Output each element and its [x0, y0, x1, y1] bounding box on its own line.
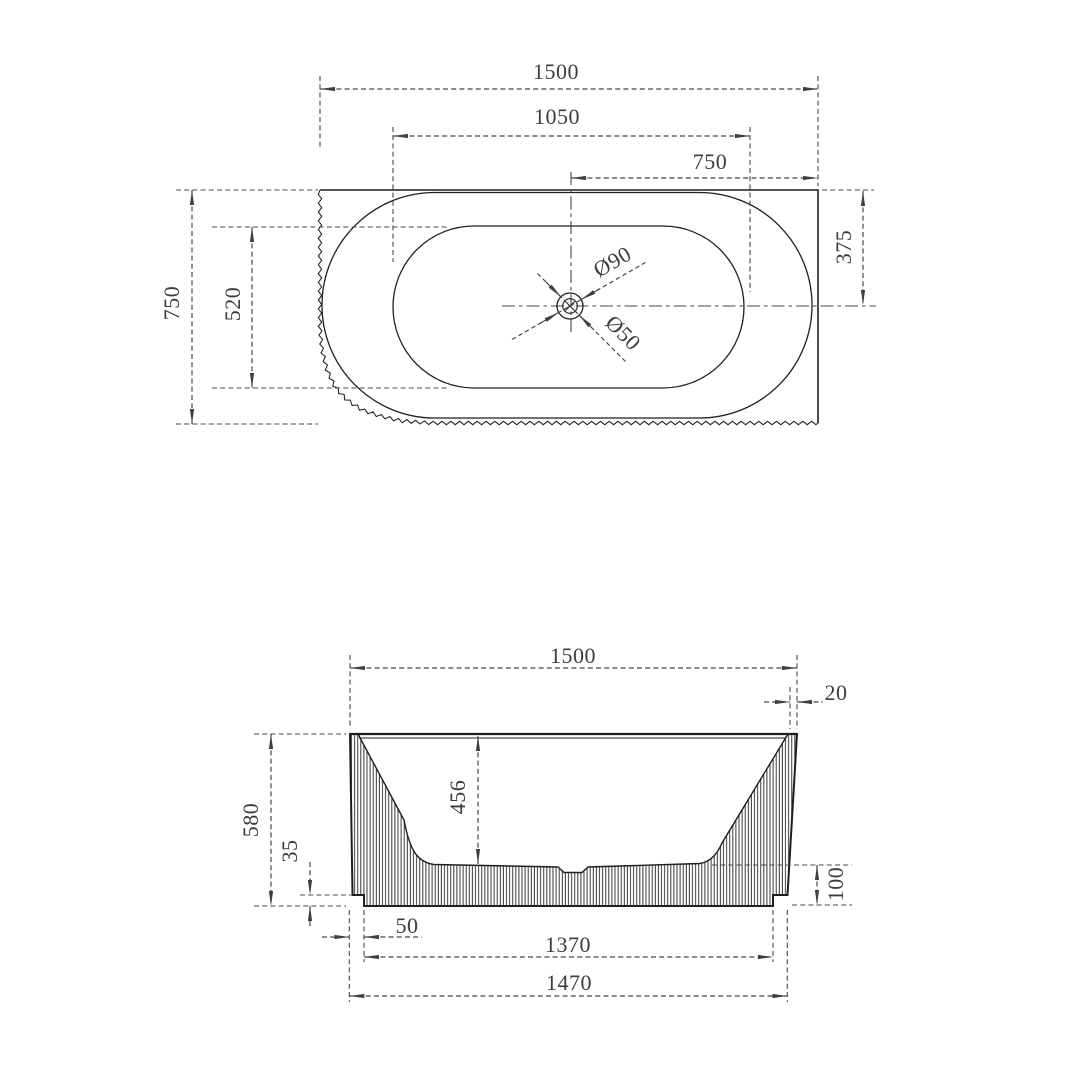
dim-label-overall-height: 580: [238, 803, 263, 838]
dim-label-drain-inner-dia: Ø50: [601, 310, 647, 356]
drain-arrow: [581, 289, 599, 300]
dim-label-elev-overall-width: 1500: [550, 643, 596, 668]
elevation-view: 1500 20 580 35 456 100 50 1370 1470: [238, 643, 852, 1002]
dim-label-rim-taper: 20: [825, 680, 848, 705]
dim-label-base-inset: 50: [396, 913, 419, 938]
dim-label-base-width: 1470: [546, 970, 592, 995]
drain-arrow: [541, 313, 559, 324]
plan-view: 1500 1050 750 750 520 375 Ø90 Ø50: [159, 59, 876, 425]
dim-label-drain-outer-dia: Ø90: [589, 241, 636, 282]
dim-label-plan-inner-length: 1050: [534, 104, 580, 129]
dim-label-plan-inner-width: 520: [220, 287, 245, 322]
dim-label-base-inner-width: 1370: [545, 932, 591, 957]
dim-label-base-height: 100: [823, 867, 848, 902]
technical-drawing: 1500 1050 750 750 520 375 Ø90 Ø50: [0, 0, 1080, 1080]
dim-label-internal-depth: 456: [445, 780, 470, 815]
drawing-canvas: 1500 1050 750 750 520 375 Ø90 Ø50: [0, 0, 1080, 1080]
dim-label-plan-drain-offset-right: 750: [693, 149, 728, 174]
drain-arrow: [579, 315, 594, 330]
dim-label-plan-overall-width: 1500: [533, 59, 579, 84]
dim-label-plan-overall-depth: 750: [159, 286, 184, 321]
drain-arrow: [546, 282, 561, 297]
dim-label-plan-drain-offset-back: 375: [831, 230, 856, 265]
dim-label-plinth-gap: 35: [277, 840, 302, 863]
